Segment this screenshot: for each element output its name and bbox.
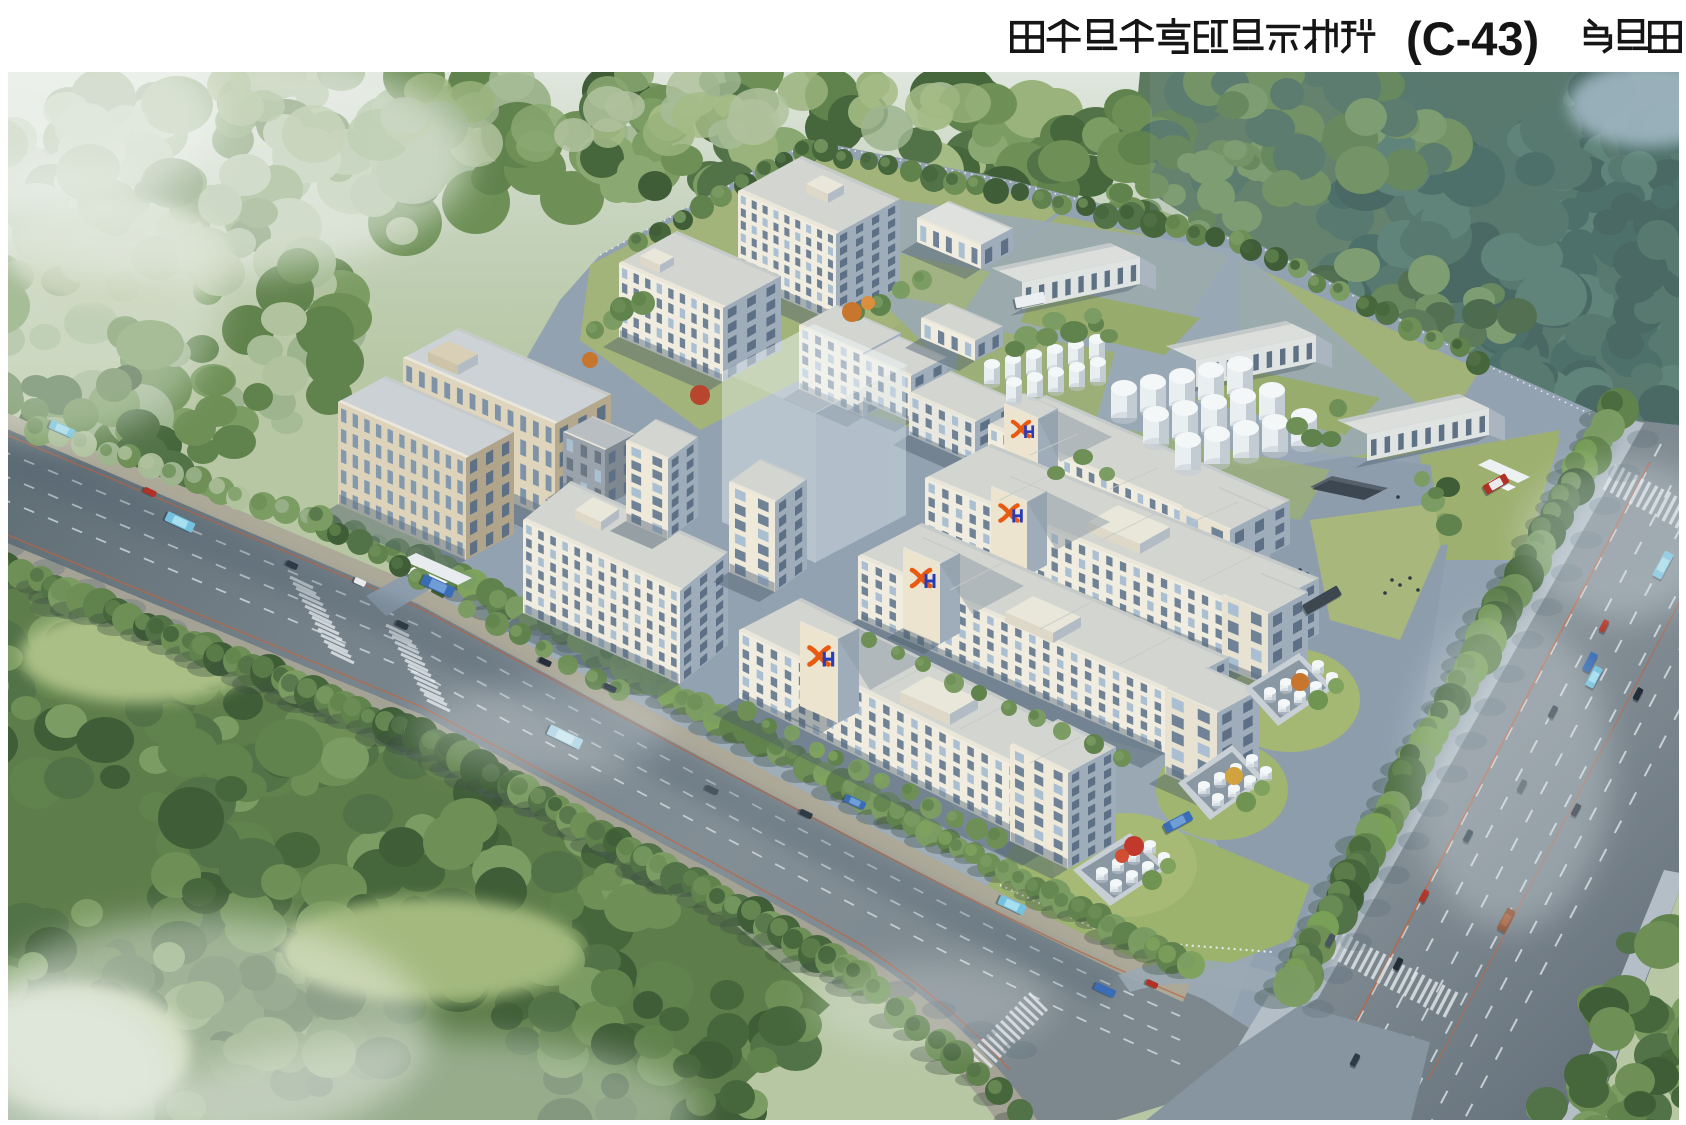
svg-text:(C-43): (C-43) (1406, 12, 1539, 65)
